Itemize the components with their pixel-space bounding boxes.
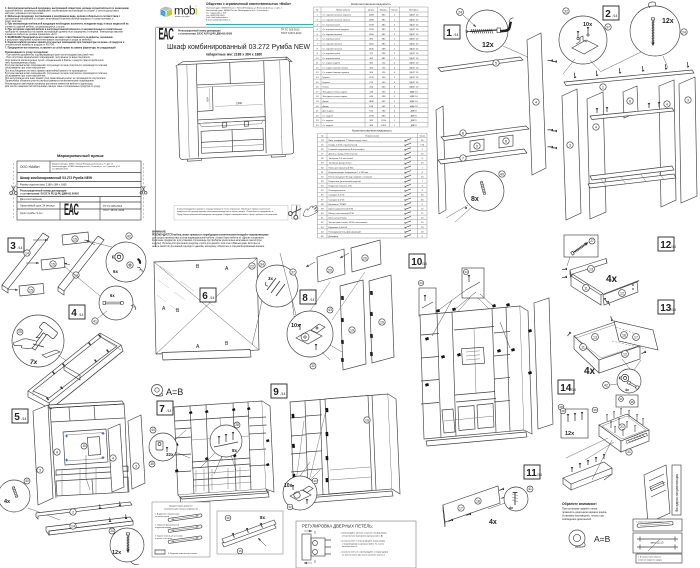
svg-text:и крепеж с отступом: и крепеж с отступом	[155, 538, 173, 540]
svg-text:15: 15	[73, 237, 77, 241]
svg-text:12: 12	[623, 352, 627, 356]
svg-text:4: 4	[112, 456, 114, 460]
svg-text:20: 20	[421, 231, 424, 233]
svg-text:39: 39	[321, 208, 324, 210]
svg-text:12: 12	[620, 291, 624, 295]
svg-text:ООО «Моби»: ООО «Моби»	[20, 165, 40, 169]
svg-text:Ст. ящика задняя: Ст. ящика задняя	[323, 63, 341, 65]
svg-text:№: №	[316, 9, 319, 12]
svg-text:Шкаф комбинированный 03.272 Ру: Шкаф комбинированный 03.272 Румба NEW	[20, 176, 93, 180]
svg-text:24: 24	[682, 30, 686, 34]
svg-text:37: 37	[606, 25, 610, 29]
svg-text:2. В боковые приставочные: 2. В боковые приставочные	[638, 557, 661, 559]
svg-text:8: 8	[422, 190, 424, 192]
svg-text:6: 6	[629, 99, 631, 103]
svg-text:1. Совместите риски и установи: 1. Совместите риски и установите	[636, 522, 663, 524]
svg-text:546: 546	[369, 91, 373, 93]
svg-text:8: 8	[462, 131, 464, 135]
svg-text:364: 364	[369, 87, 373, 89]
svg-text:10x: 10x	[291, 323, 301, 329]
svg-text:3: 3	[135, 464, 137, 468]
svg-text:Наименование: Наименование	[365, 135, 380, 137]
svg-text:5: 5	[14, 412, 20, 423]
svg-text:2. Мебельная продукция, постав: 2. Мебельная продукция, поставляемая в р…	[5, 16, 121, 18]
svg-text:340: 340	[382, 87, 386, 89]
svg-text:Чтобы рекомендуемые проверить:: Чтобы рекомендуемые проверить: площадь п…	[177, 208, 270, 210]
svg-text:Газовый амортизатор 8-й (газли: Газовый амортизатор 8-й (газлифт)	[329, 148, 365, 151]
svg-text:ДВПО: ДВПО	[411, 111, 418, 113]
svg-text:Рекомендации по уходу за издел: Рекомендации по уходу за изделием:	[5, 52, 49, 54]
svg-text:1: 1	[394, 15, 396, 17]
svg-text:564: 564	[369, 63, 373, 65]
svg-text:2: 2	[394, 115, 396, 117]
svg-text:/14: /14	[281, 392, 286, 396]
svg-text:2: 2	[72, 510, 74, 514]
svg-text:4: 4	[71, 308, 77, 319]
svg-text:4x: 4x	[625, 388, 629, 392]
svg-text:1: 1	[602, 85, 604, 89]
svg-text:МДФ 16: МДФ 16	[410, 95, 419, 98]
svg-text:тел.: 8(831)218-29-61: тел.: 8(831)218-29-61	[206, 15, 225, 17]
svg-text:10: 10	[411, 257, 423, 268]
svg-text:2: 2	[394, 24, 396, 26]
svg-text:380: 380	[382, 115, 386, 117]
svg-text:Дюбель-гвоздь 6*40 пластик: Дюбель-гвоздь 6*40 пластик	[329, 154, 358, 156]
svg-text:Фасадная стенка ящика: Фасадная стенка ящика	[323, 95, 348, 98]
svg-text:25: 25	[321, 144, 324, 146]
svg-text:362: 362	[369, 58, 373, 60]
svg-text:13: 13	[593, 335, 597, 339]
svg-text:Эксцентрик-стяжка 15/15 пласти: Эксцентрик-стяжка 15/15 пластиковая	[329, 222, 369, 224]
svg-text:37: 37	[321, 199, 324, 201]
svg-text:24: 24	[110, 529, 114, 533]
svg-text:35: 35	[321, 190, 324, 192]
svg-text:1768: 1768	[369, 29, 375, 31]
svg-text:1304: 1304	[381, 125, 387, 127]
svg-text:12: 12	[421, 208, 424, 210]
svg-text:36: 36	[321, 195, 324, 197]
svg-text:41: 41	[528, 487, 532, 491]
svg-text:4: 4	[394, 63, 396, 65]
svg-text:на полную длину: на полную длину	[155, 516, 169, 518]
svg-text:- При отсутствии механических: - При отсутствии механических повреждени…	[5, 56, 91, 59]
svg-text:32: 32	[564, 9, 568, 13]
svg-text:7. Предприятие-изготовитель ос: 7. Предприятие-изготовитель оставляет за…	[5, 46, 116, 49]
svg-text:1314: 1314	[381, 120, 387, 122]
svg-text:380: 380	[369, 125, 373, 127]
svg-text:24: 24	[419, 281, 423, 285]
svg-text:A=B: A=B	[166, 387, 183, 397]
svg-text:6: 6	[505, 139, 507, 143]
svg-text:32: 32	[288, 505, 292, 509]
svg-text:Дверь: Дверь	[323, 101, 330, 103]
svg-text:100: 100	[382, 77, 386, 79]
svg-text:Ст. горизонтальная: Ст. горизонтальная	[323, 34, 343, 36]
svg-text:4x: 4x	[606, 274, 618, 285]
svg-text:1: 1	[394, 20, 396, 22]
svg-text:Гвоздь 1,6*25 строительный: Гвоздь 1,6*25 строительный	[329, 143, 358, 146]
svg-text:ЛДСП 16: ЛДСП 16	[409, 87, 419, 89]
svg-text:28: 28	[321, 158, 324, 160]
svg-text:1: 1	[394, 34, 396, 36]
svg-text:2: 2	[394, 96, 396, 98]
svg-text:нагрузок, указанных изготовите: нагрузок, указанных изготовителем.	[5, 13, 44, 15]
svg-text:изделий мебели, указанным в ма: изделий мебели, указанным в маркировке, …	[5, 10, 120, 13]
svg-text:2: 2	[394, 77, 396, 79]
svg-text:ЛДСП 16: ЛДСП 16	[409, 77, 419, 79]
svg-text:382: 382	[382, 15, 386, 17]
svg-text:14: 14	[71, 524, 75, 528]
svg-text:отверстия закрутите шурупы: отверстия закрутите шурупы	[638, 560, 663, 562]
svg-text:7: 7	[317, 43, 319, 45]
svg-text:64: 64	[421, 195, 424, 197]
svg-text:28: 28	[235, 423, 239, 427]
svg-text:12: 12	[316, 67, 319, 69]
svg-text:Подпятник (усиленный) черный: Подпятник (усиленный) черный	[329, 180, 362, 183]
svg-text:25: 25	[18, 330, 22, 334]
svg-text:15: 15	[51, 262, 55, 266]
svg-text:4. При установке изделий мебел: 4. При установке изделий мебели в непоср…	[5, 28, 123, 31]
svg-text:ЛДСП 16: ЛДСП 16	[409, 72, 419, 74]
svg-text:мебель для дома: мебель для дома	[175, 16, 190, 18]
svg-text:РЕГУЛИРОВКА ДВЕРНЫХ ПЕТЕЛЬ:: РЕГУЛИРОВКА ДВЕРНЫХ ПЕТЕЛЬ:	[302, 524, 373, 529]
svg-text:о соответствии: ЕАЭС N RU Д-RU: о соответствии: ЕАЭС N RU Д-RU.ДМ04.В.00…	[20, 193, 79, 196]
svg-text:16: 16	[316, 87, 319, 89]
svg-text:10: 10	[421, 176, 424, 178]
svg-text:10: 10	[82, 444, 86, 448]
svg-text:14: 14	[560, 383, 572, 394]
svg-text:30: 30	[321, 167, 324, 169]
svg-text:Полкодержатель-фиксирующий: Полкодержатель-фиксирующий	[329, 230, 362, 233]
svg-text:Полкодержатель: Полкодержатель	[329, 190, 347, 192]
svg-text:382: 382	[382, 20, 386, 22]
svg-text:ЛДСП 16: ЛДСП 16	[409, 48, 419, 50]
svg-text:300: 300	[369, 67, 373, 69]
svg-text:23: 23	[316, 120, 319, 122]
svg-text:поверхности. На странице корот: поверхности. На странице короткие неболь…	[177, 211, 273, 213]
svg-text:122: 122	[369, 53, 373, 55]
svg-text:ЛДСП 16: ЛДСП 16	[409, 53, 419, 55]
svg-text:4x: 4x	[489, 519, 497, 526]
svg-text:Регистрационный номер декларац: Регистрационный номер декларации	[178, 30, 221, 33]
svg-text:7: 7	[159, 404, 165, 415]
svg-text:14: 14	[25, 251, 29, 255]
svg-text:ТР ТС 025-2012: ТР ТС 025-2012	[281, 29, 300, 32]
svg-text:Заглушка декор-белая: Заглушка декор-белая	[329, 163, 353, 165]
svg-text:ЛДСП 16: ЛДСП 16	[409, 34, 419, 36]
svg-text:13: 13	[589, 267, 593, 271]
svg-text:17: 17	[459, 506, 463, 510]
svg-text:в результате нарушения покупат: в результате нарушения покупателем прави…	[5, 39, 93, 41]
svg-text:20: 20	[421, 222, 424, 224]
svg-text:24: 24	[321, 140, 324, 142]
svg-text:1896: 1896	[369, 101, 375, 103]
svg-text:15: 15	[316, 82, 319, 84]
svg-text:Рекомендуется регулярная прове: Рекомендуется регулярная проверка крепле…	[5, 82, 94, 85]
svg-text:4x: 4x	[584, 366, 596, 377]
svg-text:27: 27	[321, 154, 324, 156]
svg-text:ЛДСП 16: ЛДСП 16	[409, 20, 419, 22]
svg-text:4. Закрепите отметки и установ: 4. Закрепите отметки и установите	[168, 553, 197, 555]
svg-text:При несоблюдении или иных прав: При несоблюдении или иных правил гаранти…	[5, 69, 88, 72]
svg-text:382: 382	[382, 24, 386, 26]
svg-text:3: 3	[569, 143, 571, 147]
svg-text:12x: 12x	[112, 550, 122, 556]
svg-text:2: 2	[422, 149, 424, 151]
svg-text:ЛДСП 16: ЛДСП 16	[409, 39, 419, 41]
svg-text:34: 34	[321, 186, 324, 188]
svg-text:Гарантийные обязательства не р: Гарантийные обязательства не распростран…	[5, 80, 95, 83]
svg-text:286: 286	[382, 111, 386, 113]
svg-text:42: 42	[604, 383, 608, 387]
svg-text:Ст. вертикальная: Ст. вертикальная	[323, 39, 341, 41]
svg-text:35: 35	[150, 462, 154, 466]
svg-text:Комплектовочная ведомость: Комплектовочная ведомость	[352, 129, 393, 133]
svg-text:Ст. вертикальная: Ст. вертикальная	[323, 53, 341, 55]
svg-text:6: 6	[317, 39, 319, 41]
svg-text:ЛДСП 16: ЛДСП 16	[409, 63, 419, 65]
svg-text:обслуживание при этом покупате: обслуживание при этом покупателем.	[5, 68, 46, 70]
svg-text:5: 5	[495, 61, 497, 65]
svg-text:/14: /14	[79, 313, 84, 317]
svg-text:19: 19	[365, 418, 369, 422]
svg-text:8: 8	[317, 48, 319, 50]
svg-text:Ширина: Ширина	[380, 10, 388, 12]
svg-text:8x: 8x	[260, 515, 266, 520]
svg-text:В случае механических поврежде: В случае механических повреждений, получ…	[5, 64, 108, 67]
svg-text:31: 31	[321, 172, 324, 174]
svg-text:Винт-конфирмат 7*50хмм внутр.: Винт-конфирмат 7*50хмм внутр. шест.	[329, 139, 368, 142]
svg-text:A=B: A=B	[594, 534, 611, 544]
svg-text:ЛДСП 16: ЛДСП 16	[409, 24, 419, 26]
svg-text:41: 41	[321, 218, 324, 220]
svg-text:44: 44	[151, 428, 155, 432]
svg-text:/14: /14	[22, 417, 27, 421]
svg-text:шурупы). Используйте крепления: шурупы). Используйте крепления средства,…	[152, 242, 261, 245]
svg-text:3: 3	[39, 468, 41, 472]
svg-text:Демпфер: Демпфер	[329, 235, 339, 238]
svg-text:6x: 6x	[110, 293, 115, 298]
svg-text:Длина: Длина	[368, 10, 375, 12]
svg-text:Материал: Материал	[409, 10, 419, 12]
svg-text:170: 170	[420, 144, 424, 146]
svg-text:1: 1	[446, 28, 452, 39]
svg-text:мин.12,13: мин.12,13	[651, 541, 664, 545]
svg-text:Наименование: Наименование	[336, 10, 351, 12]
svg-text:/14: /14	[210, 296, 215, 300]
svg-text:4: 4	[394, 67, 396, 69]
svg-text:Дата изготовления:: Дата изготовления:	[20, 198, 43, 201]
svg-text:Ст. задняя: Ст. задняя	[323, 120, 334, 122]
svg-text:18: 18	[476, 499, 480, 503]
svg-text:элементов мебели не должна пре: элементов мебели не должна превышать +40…	[5, 34, 58, 36]
svg-text:4: 4	[595, 125, 597, 129]
svg-text:Дно ящика: Дно ящика	[323, 111, 335, 113]
svg-text:4: 4	[317, 29, 319, 31]
svg-text:45: 45	[321, 236, 324, 238]
svg-text:Ст. горизонтальная: Ст. горизонтальная	[323, 48, 343, 50]
svg-text:1300: 1300	[369, 43, 375, 45]
svg-text:/14: /14	[613, 14, 618, 18]
svg-text:5: 5	[317, 34, 319, 36]
svg-text:3. Задняя отметка для установк: 3. Задняя отметка для установки	[155, 536, 183, 538]
svg-text:EAC: EAC	[64, 199, 79, 218]
svg-text:10x: 10x	[284, 483, 293, 489]
svg-text:14: 14	[74, 273, 78, 277]
svg-text:8x: 8x	[232, 448, 238, 453]
svg-text:Ст. задняя: Ст. задняя	[323, 125, 334, 127]
svg-text:1: 1	[394, 48, 396, 50]
svg-text:40: 40	[25, 479, 29, 483]
svg-text:11: 11	[584, 286, 588, 290]
svg-text:6: 6	[422, 204, 424, 206]
svg-text:12x: 12x	[662, 18, 674, 25]
svg-text:тел. 8(831)218-29-61: тел. 8(831)218-29-61	[52, 169, 68, 171]
svg-text:36: 36	[226, 516, 230, 520]
svg-text:Болажель "РУБИ": Болажель "РУБИ"	[329, 204, 347, 206]
svg-text:При установке задней стенки: При установке задней стенки	[562, 507, 598, 511]
svg-text:Саморез 4,0*16: Саморез 4,0*16	[329, 199, 346, 201]
svg-text:7: 7	[422, 181, 424, 183]
svg-text:6. Изделия мебели должны храни: 6. Изделия мебели должны храниться в кры…	[5, 42, 125, 44]
svg-text:19: 19	[421, 163, 424, 165]
svg-text:Регистрационный номер декларац: Регистрационный номер декларации	[20, 190, 67, 193]
svg-text:21: 21	[620, 425, 624, 429]
svg-text:знаете какой тип крепежный под: знаете какой тип крепежный подходит к да…	[152, 245, 265, 248]
svg-text:7x: 7x	[30, 359, 38, 366]
svg-text:38: 38	[321, 204, 324, 206]
svg-text:ЛДСП 16: ЛДСП 16	[409, 15, 419, 17]
svg-text:288: 288	[382, 48, 386, 50]
svg-text:3x: 3x	[268, 276, 274, 281]
svg-text:Комплектовочная ведомость: Комплектовочная ведомость	[351, 2, 392, 6]
svg-text:ВНИМАНИЕ:: ВНИМАНИЕ:	[152, 231, 166, 234]
svg-text:Ст. вертикальная: Ст. вертикальная	[323, 24, 341, 26]
svg-text:8x: 8x	[471, 196, 479, 203]
svg-text:прилагаемой инструкцией по сбо: прилагаемой инструкцией по сборке, включ…	[5, 17, 114, 20]
svg-text:габаритные мм: 2188 х 384 х 18: габаритные мм: 2188 х 384 х 1860	[206, 53, 262, 57]
svg-text:1796: 1796	[369, 115, 375, 117]
svg-text:31: 31	[627, 450, 631, 454]
svg-text:238: 238	[382, 96, 386, 98]
svg-text:22: 22	[250, 264, 254, 268]
svg-text:Ст. ящика боковая правая: Ст. ящика боковая правая	[323, 72, 350, 74]
svg-text:24: 24	[458, 10, 462, 14]
svg-text:Ст. горизонтальная: Ст. горизонтальная	[323, 43, 343, 45]
svg-text:15: 15	[29, 288, 33, 292]
svg-text:Шток эксцентрика: Шток эксцентрика	[329, 218, 348, 220]
svg-text:10x: 10x	[583, 22, 593, 28]
svg-text:12: 12	[660, 240, 672, 251]
svg-text:382: 382	[382, 34, 386, 36]
svg-text:направляющих парного выдвижени: направляющих парного выдвижения	[164, 508, 198, 510]
svg-text:382: 382	[382, 29, 386, 31]
svg-text:40: 40	[321, 213, 324, 215]
svg-text:относительной влажности воздух: относительной влажности воздуха от 45-70…	[5, 44, 55, 47]
svg-text:36: 36	[593, 408, 597, 412]
svg-text:380: 380	[382, 43, 386, 45]
svg-text:238: 238	[382, 53, 386, 55]
svg-text:Цоколь: Цоколь	[323, 77, 331, 79]
svg-text:20: 20	[328, 268, 332, 272]
svg-text:2: 2	[605, 9, 611, 20]
svg-text:Ст. вертикальная средняя: Ст. вертикальная средняя	[323, 29, 350, 31]
svg-text:646: 646	[369, 106, 373, 108]
svg-text:Для чистки поверхностей исполь: Для чистки поверхностей использовать мяг…	[5, 85, 101, 88]
svg-text:МДФ 16: МДФ 16	[410, 105, 419, 108]
svg-text:затяните винт 2: затяните винт 2	[342, 546, 358, 548]
svg-text:9: 9	[317, 53, 319, 55]
svg-text:Срок ремонта исключительно сух: Срок ремонта исключительно сухом, опреде…	[5, 59, 104, 62]
svg-text:1: 1	[394, 125, 396, 127]
svg-text:18: 18	[316, 96, 319, 98]
svg-text:20: 20	[421, 227, 424, 229]
svg-text:1: 1	[394, 120, 396, 122]
svg-text:16: 16	[421, 154, 424, 156]
svg-text:124: 124	[382, 72, 386, 74]
svg-text:Общество с ограниченной ответс: Общество с ограниченной ответственностью…	[206, 2, 291, 6]
svg-text:2: 2	[394, 106, 396, 108]
svg-text:15: 15	[238, 549, 242, 553]
svg-text:элементы изделий мебели, сопри: элементы изделий мебели, соприкасающиеся…	[5, 25, 65, 28]
svg-text:EAC: EAC	[159, 25, 174, 43]
svg-text:Обратите внимание!: Обратите внимание!	[562, 502, 597, 506]
svg-text:24: 24	[316, 125, 319, 127]
svg-text:Выдвиж ящика держится: Выдвиж ящика держится	[169, 506, 192, 508]
svg-text:РЕКОМЕНДУЕТСЯ мебель может при: РЕКОМЕНДУЕТСЯ мебель может привести к пе…	[152, 233, 269, 236]
svg-text:33: 33	[321, 181, 324, 183]
svg-text:3: 3	[317, 24, 319, 26]
svg-text:Ключ шестигранный №4: Ключ шестигранный №4	[329, 166, 355, 169]
svg-text:1: 1	[317, 15, 319, 17]
svg-text:ДВПО: ДВПО	[411, 120, 418, 122]
svg-text:4x: 4x	[4, 499, 11, 505]
svg-text:Подвеска плоская 4.65: Подвеска плоская 4.65	[329, 186, 353, 188]
svg-text:/14: /14	[422, 262, 427, 266]
svg-text:381: 381	[369, 120, 373, 122]
svg-text:проверить диагонали каркаса ящ: проверить диагонали каркаса ящика.	[562, 511, 607, 514]
svg-text:4: 4	[422, 172, 424, 174]
svg-text:/14: /14	[671, 308, 676, 312]
svg-text:2088: 2088	[369, 20, 375, 22]
svg-text:1: 1	[422, 167, 424, 169]
svg-text:32x: 32x	[166, 452, 174, 457]
svg-text:10: 10	[316, 58, 319, 60]
svg-text:16: 16	[622, 333, 626, 337]
svg-text:19: 19	[380, 320, 384, 324]
svg-text:13: 13	[316, 72, 319, 74]
svg-text:17: 17	[316, 91, 319, 93]
svg-text:26: 26	[421, 140, 424, 142]
svg-text:Цоколь: Цоколь	[323, 82, 331, 84]
svg-text:Фасадная стенка ящика: Фасадная стенка ящика	[323, 90, 348, 93]
svg-text:Ст. задняя: Ст. задняя	[323, 115, 334, 117]
svg-text:МДФ 16: МДФ 16	[410, 100, 419, 103]
svg-text:382: 382	[382, 58, 386, 60]
svg-text:Срок службы: 5 лет: Срок службы: 5 лет	[20, 212, 44, 215]
svg-text:5. ВНИМАНИЕ! Предприятие-изгот: 5. ВНИМАНИЕ! Предприятие-изготовитель не…	[5, 36, 114, 39]
svg-text:32: 32	[321, 176, 324, 178]
svg-text:Саморез 3,0*16: Саморез 3,0*16	[329, 195, 346, 197]
svg-text:схему монтажа.: схему монтажа.	[5, 21, 22, 23]
svg-text:ЛДСП 16: ЛДСП 16	[409, 29, 419, 31]
svg-text:4: 4	[422, 236, 424, 238]
svg-text:Шкант деревянный 8*30: Шкант деревянный 8*30	[329, 207, 354, 210]
svg-text:/14: /14	[18, 246, 23, 250]
svg-text:1300: 1300	[236, 101, 243, 105]
svg-text:совпадении диагоналей.: совпадении диагоналей.	[562, 517, 592, 521]
svg-text:для предосторожностями столов: для предосторожностями столов индивидуал…	[152, 236, 265, 239]
